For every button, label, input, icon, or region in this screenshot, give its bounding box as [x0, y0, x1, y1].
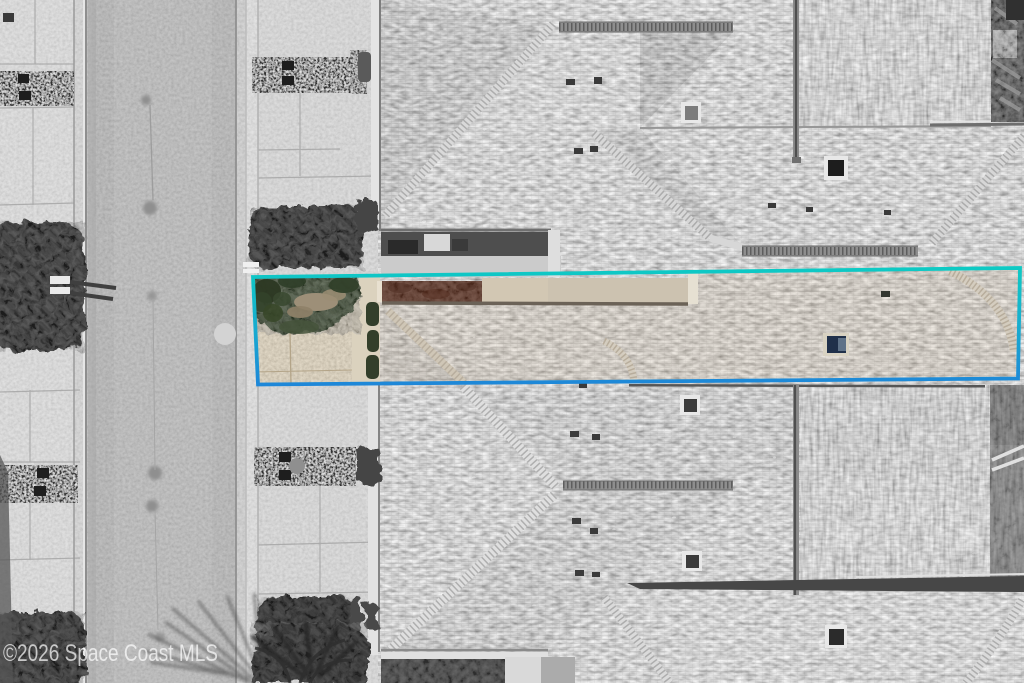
svg-text:©2026 Space Coast MLS: ©2026 Space Coast MLS [3, 640, 218, 667]
